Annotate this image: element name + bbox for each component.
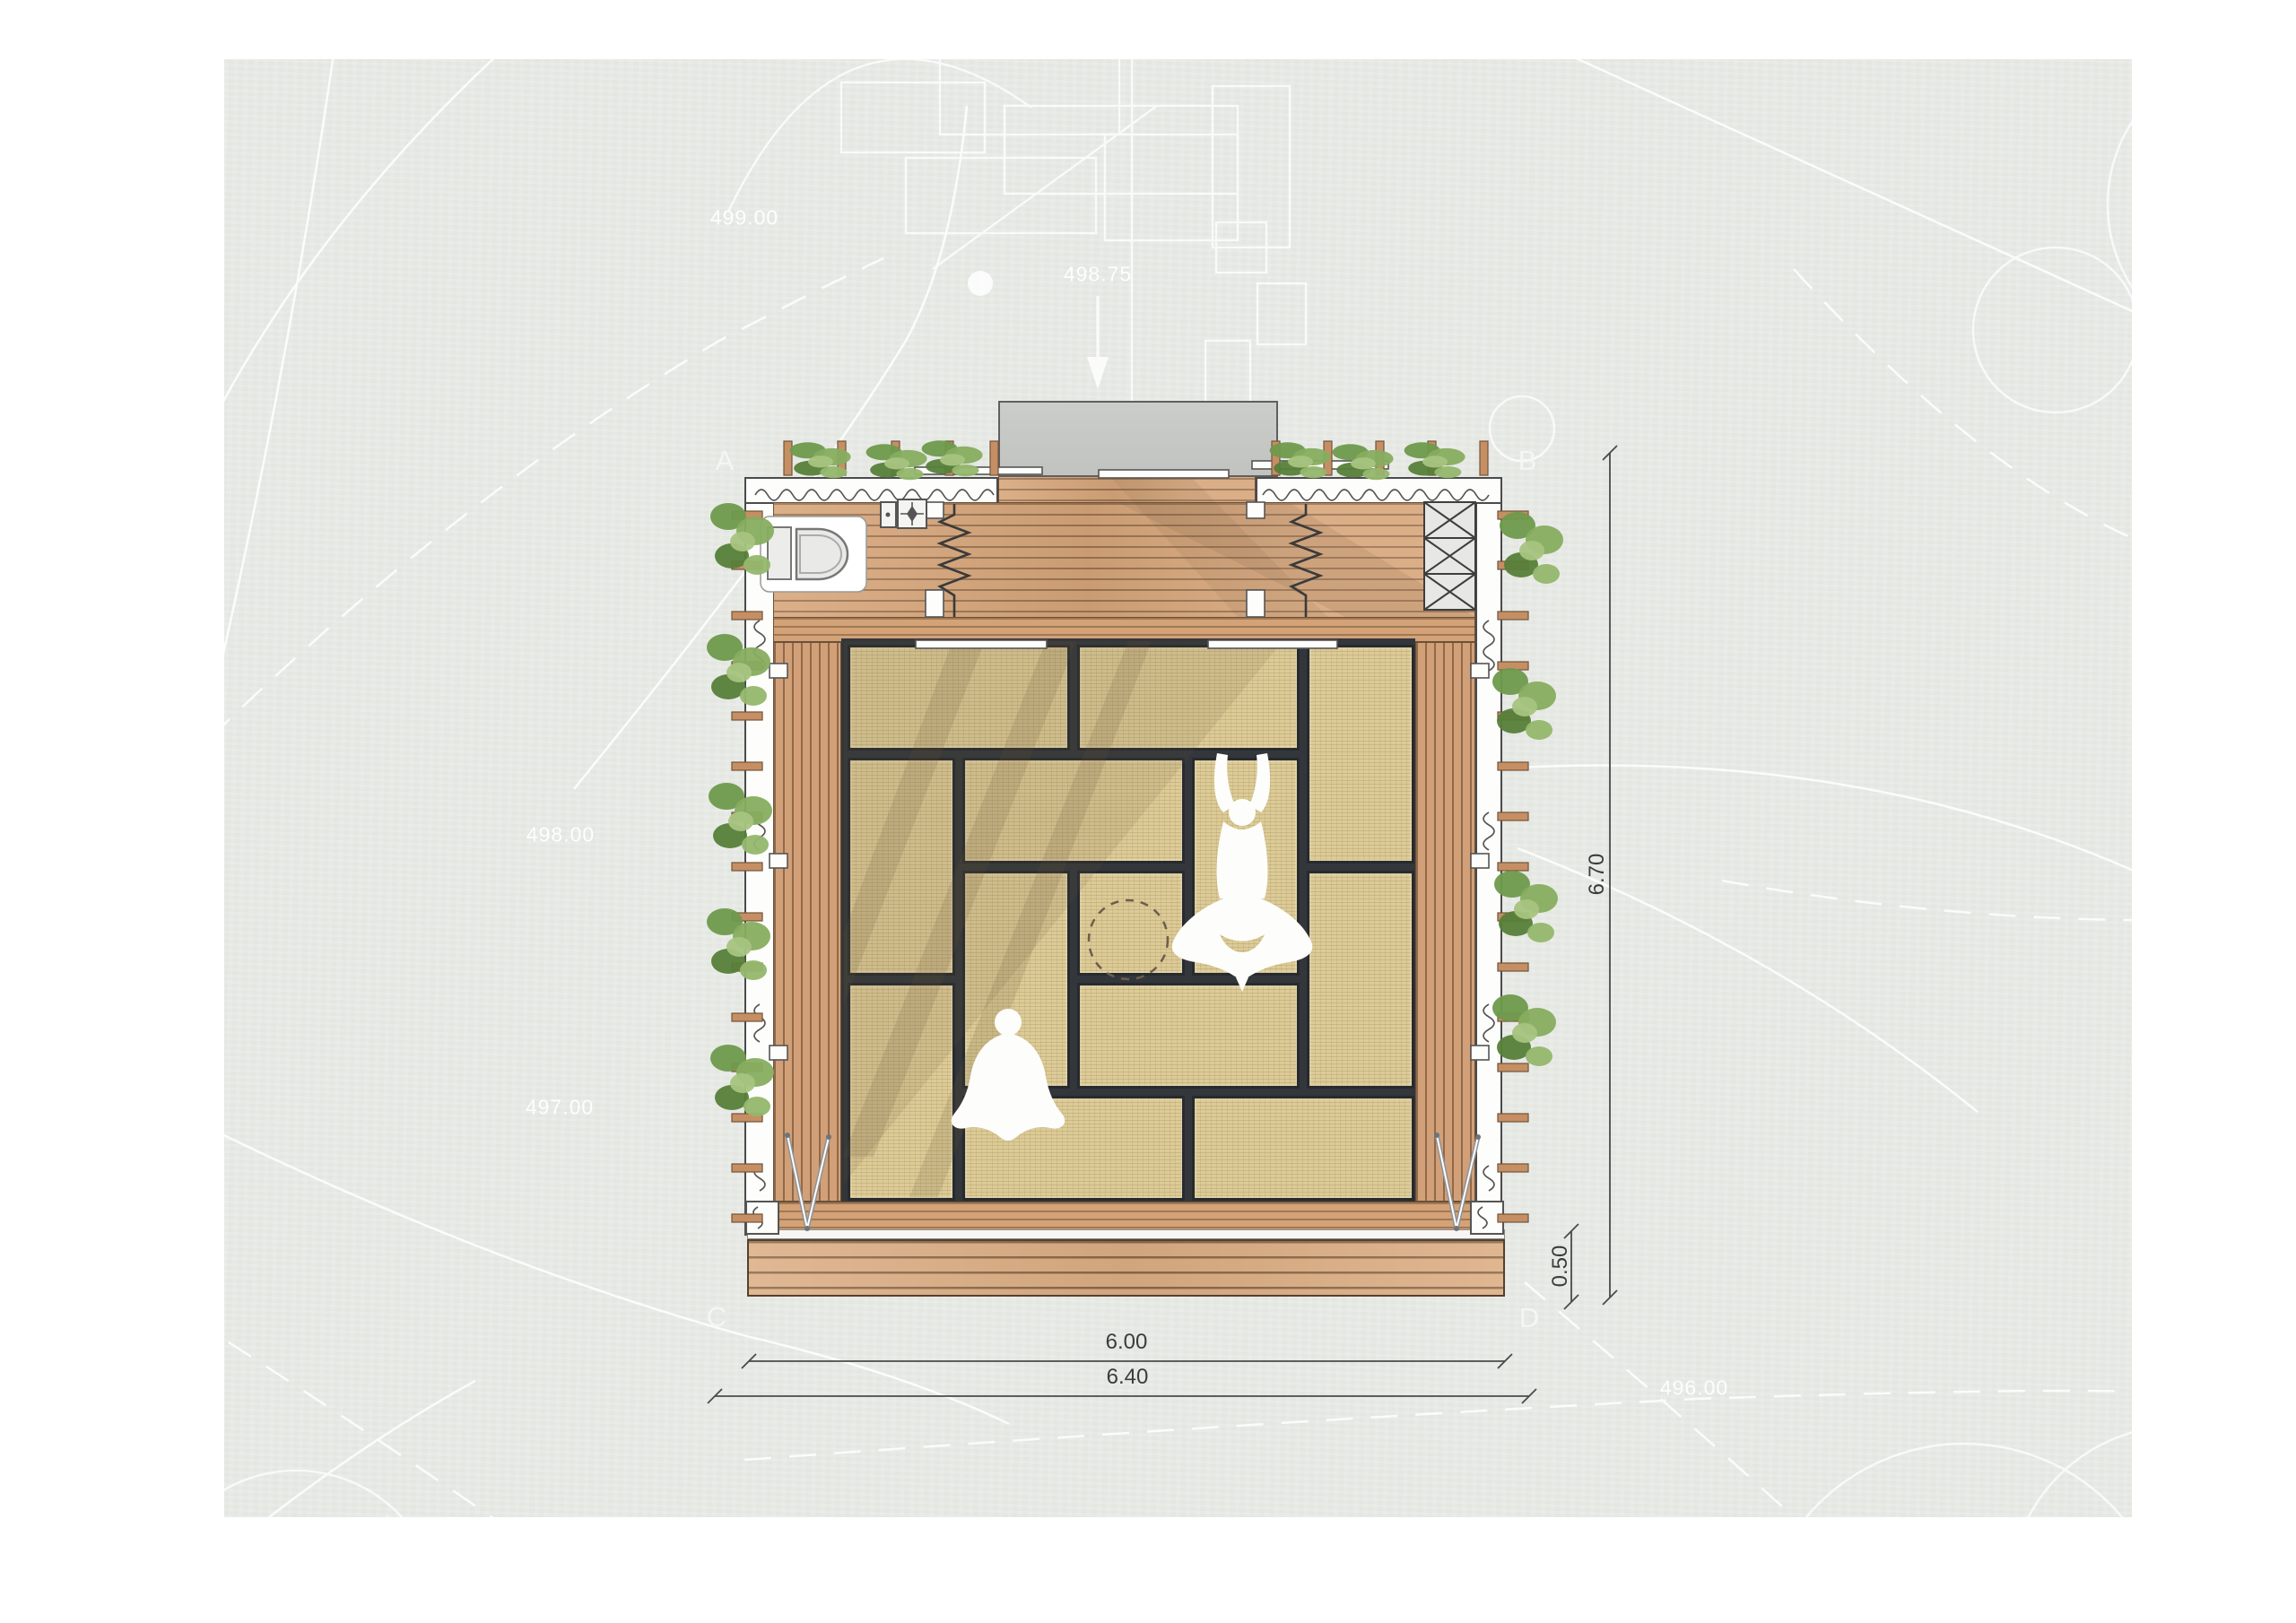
corridor-floor (773, 502, 1475, 619)
tatami-mat (962, 1096, 1185, 1201)
tatami-mat (1077, 645, 1300, 751)
south-deck (747, 1239, 1505, 1297)
tatami-mat (1307, 871, 1414, 1089)
tatami-mat (1192, 758, 1300, 976)
engawa-west (773, 642, 841, 1202)
floor-plan-sheet: 499.00498.75498.00497.00496.00ABCD6.700.… (0, 0, 2296, 1623)
tatami-mat (1307, 645, 1414, 864)
tatami-mat (962, 871, 1070, 1089)
entry-canopy (998, 401, 1278, 477)
site-rectangles (728, 52, 1306, 404)
wall-east (1475, 477, 1502, 1236)
engawa-east (1415, 642, 1475, 1202)
tatami-mat (962, 758, 1185, 864)
entry-arrow-icon (1087, 296, 1109, 389)
sliding-track (747, 1229, 1505, 1239)
tatami-mat (1077, 983, 1300, 1089)
wall-north-left (744, 477, 998, 504)
tatami-field (841, 638, 1415, 1202)
tatami-mat (848, 645, 1070, 751)
white-dot (968, 271, 993, 296)
wall-west (744, 477, 775, 1236)
threshold-band (773, 1202, 1475, 1230)
tatami-mat (848, 983, 955, 1201)
wall-north-right (1256, 477, 1502, 504)
spot-level-marks (968, 271, 1109, 389)
tatami-mat (848, 758, 955, 976)
tatami-half-mat (1077, 871, 1185, 976)
tatami-mat (1192, 1096, 1414, 1201)
